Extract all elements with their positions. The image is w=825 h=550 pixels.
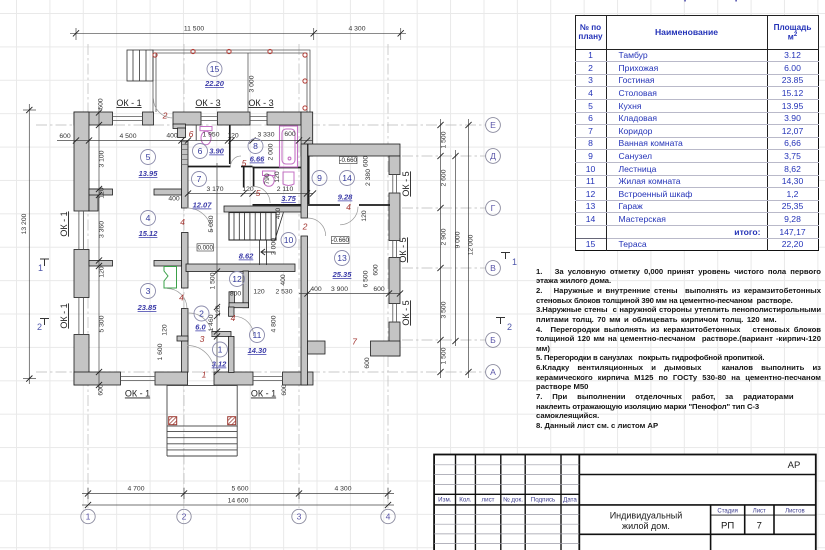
svg-text:РП: РП (721, 520, 734, 531)
svg-text:7: 7 (757, 520, 762, 531)
svg-text:Подпись: Подпись (531, 497, 556, 504)
svg-text:№ док.: № док. (503, 497, 523, 504)
svg-text:Изм.: Изм. (438, 497, 452, 504)
svg-text:лист: лист (482, 497, 495, 504)
svg-text:Индивидуальный: Индивидуальный (610, 511, 683, 521)
svg-text:Листов: Листов (785, 509, 805, 515)
svg-text:Кол.: Кол. (459, 497, 472, 504)
svg-text:Стадия: Стадия (717, 509, 737, 515)
svg-text:Дата: Дата (563, 497, 577, 504)
svg-text:АР: АР (788, 460, 801, 471)
svg-text:Лист: Лист (753, 509, 766, 515)
svg-text:жилой дом.: жилой дом. (622, 521, 670, 531)
